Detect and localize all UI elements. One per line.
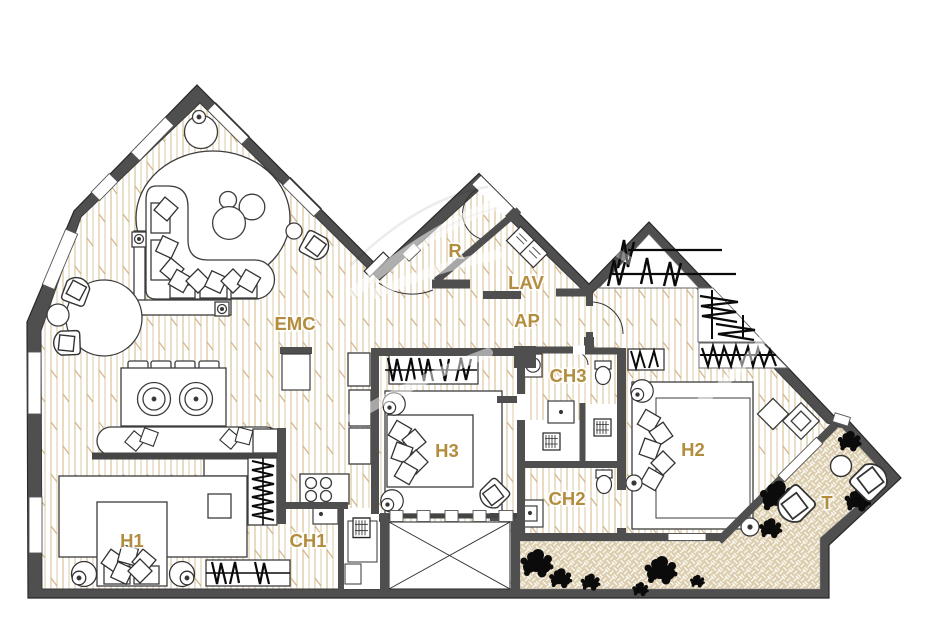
svg-text:LAV: LAV xyxy=(508,272,544,293)
svg-text:AP: AP xyxy=(514,310,540,331)
svg-text:T: T xyxy=(821,492,833,513)
svg-text:CH3: CH3 xyxy=(549,365,586,386)
svg-text:EMC: EMC xyxy=(274,313,315,334)
svg-text:CH2: CH2 xyxy=(548,488,585,509)
svg-text:H3: H3 xyxy=(435,440,459,461)
svg-text:H1: H1 xyxy=(120,530,144,551)
svg-text:R: R xyxy=(448,240,461,261)
svg-text:H2: H2 xyxy=(681,439,705,460)
svg-text:CH1: CH1 xyxy=(289,530,326,551)
